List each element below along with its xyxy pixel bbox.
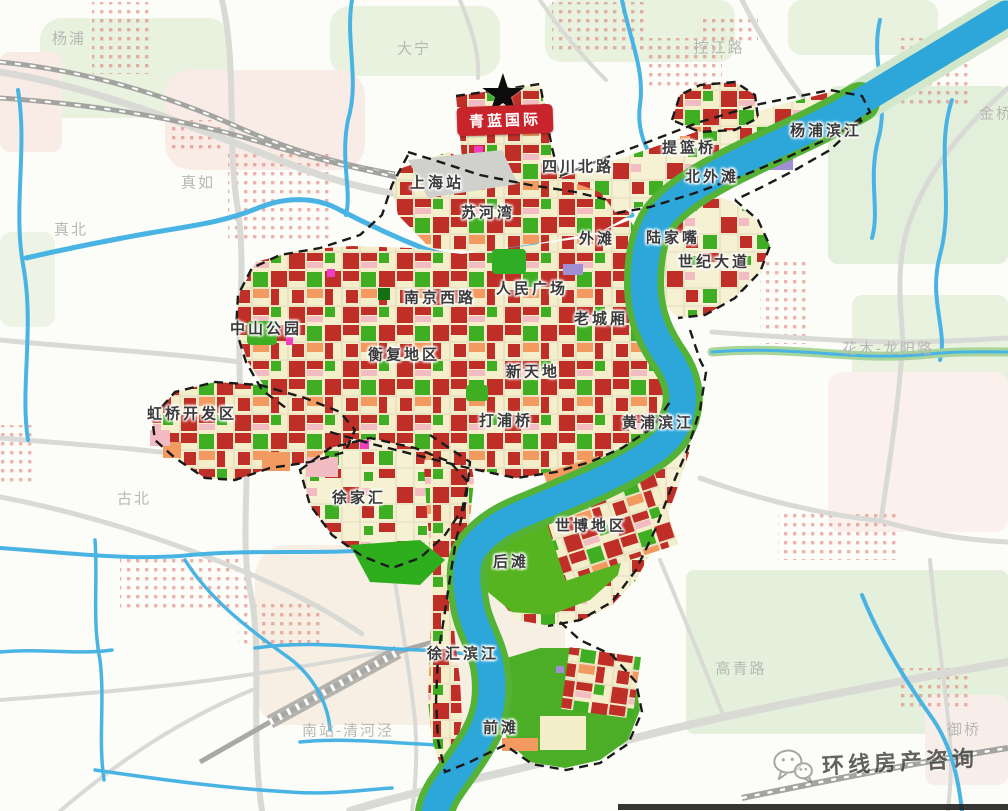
bottom-border: [618, 804, 1008, 810]
watermark-text: 环线房产咨询: [821, 741, 978, 781]
planning-map: 上海站四川北路苏河湾外滩陆家嘴世纪大道北外滩提篮桥杨浦滨江南京西路人民广场老城厢…: [0, 0, 1008, 811]
wechat-icon: [771, 747, 815, 785]
marker-label: 青蓝国际: [457, 104, 554, 136]
